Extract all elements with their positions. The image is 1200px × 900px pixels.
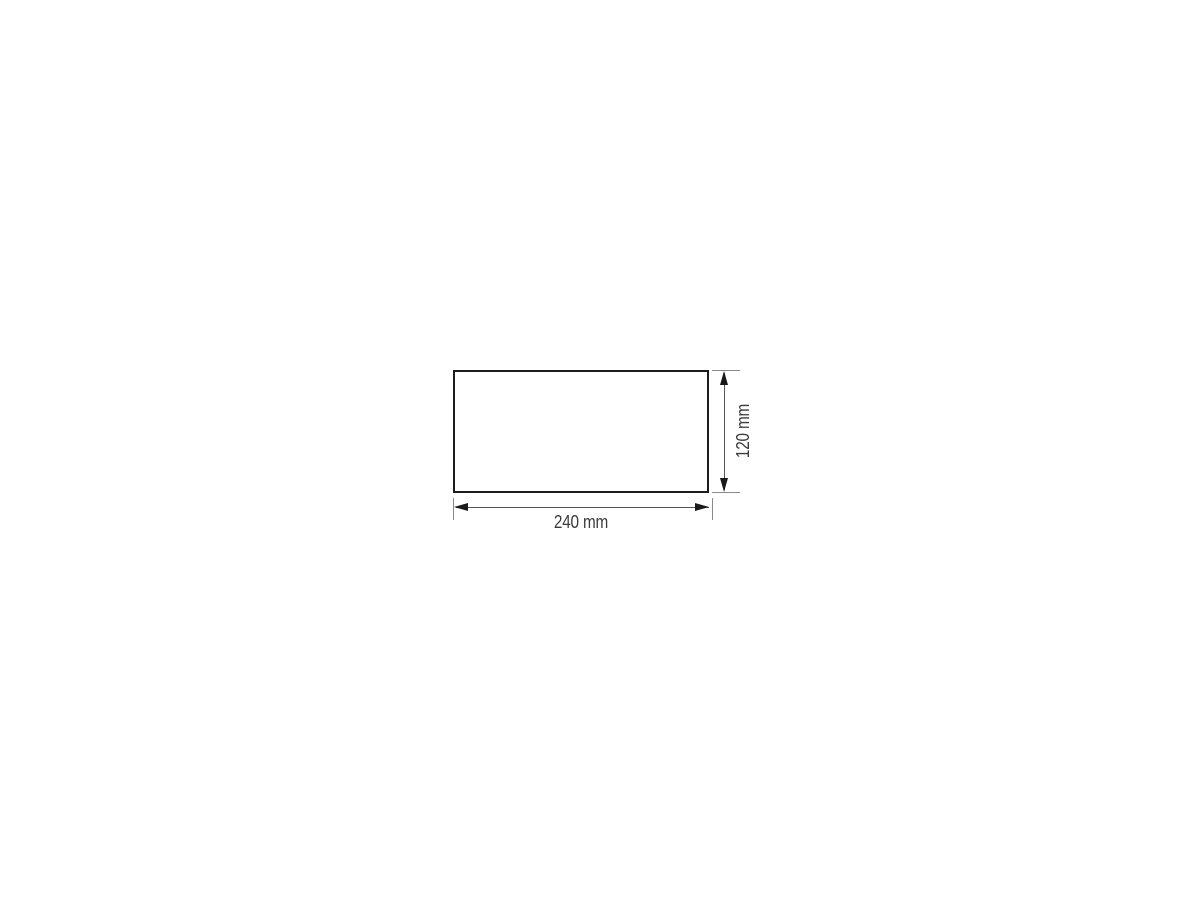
width-extension-line-right (712, 498, 713, 520)
height-dimension-label: 120 mm (733, 404, 753, 458)
product-outline-rect (453, 370, 709, 493)
arrow-down-icon (720, 478, 728, 492)
arrow-right-icon (695, 503, 709, 511)
drawing-canvas: 240 mm 120 mm (0, 0, 1200, 900)
width-dimension-line (456, 507, 709, 508)
height-extension-line-bottom (712, 492, 740, 493)
arrow-left-icon (454, 503, 468, 511)
height-dimension-line (724, 373, 725, 490)
width-dimension-label: 240 mm (554, 512, 608, 532)
arrow-up-icon (720, 371, 728, 385)
